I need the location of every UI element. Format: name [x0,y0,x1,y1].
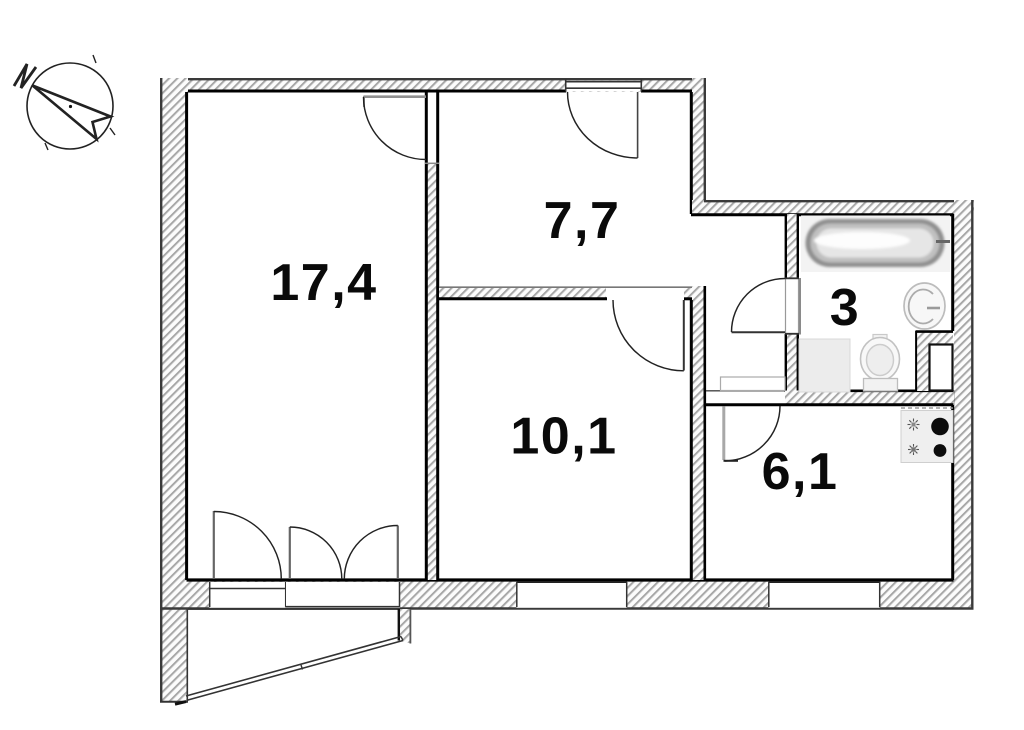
svg-text:6,1: 6,1 [762,443,839,501]
svg-text:3: 3 [830,279,860,337]
svg-text:10,1: 10,1 [510,408,617,466]
svg-text:17,4: 17,4 [270,254,377,312]
svg-text:7,7: 7,7 [544,192,621,250]
